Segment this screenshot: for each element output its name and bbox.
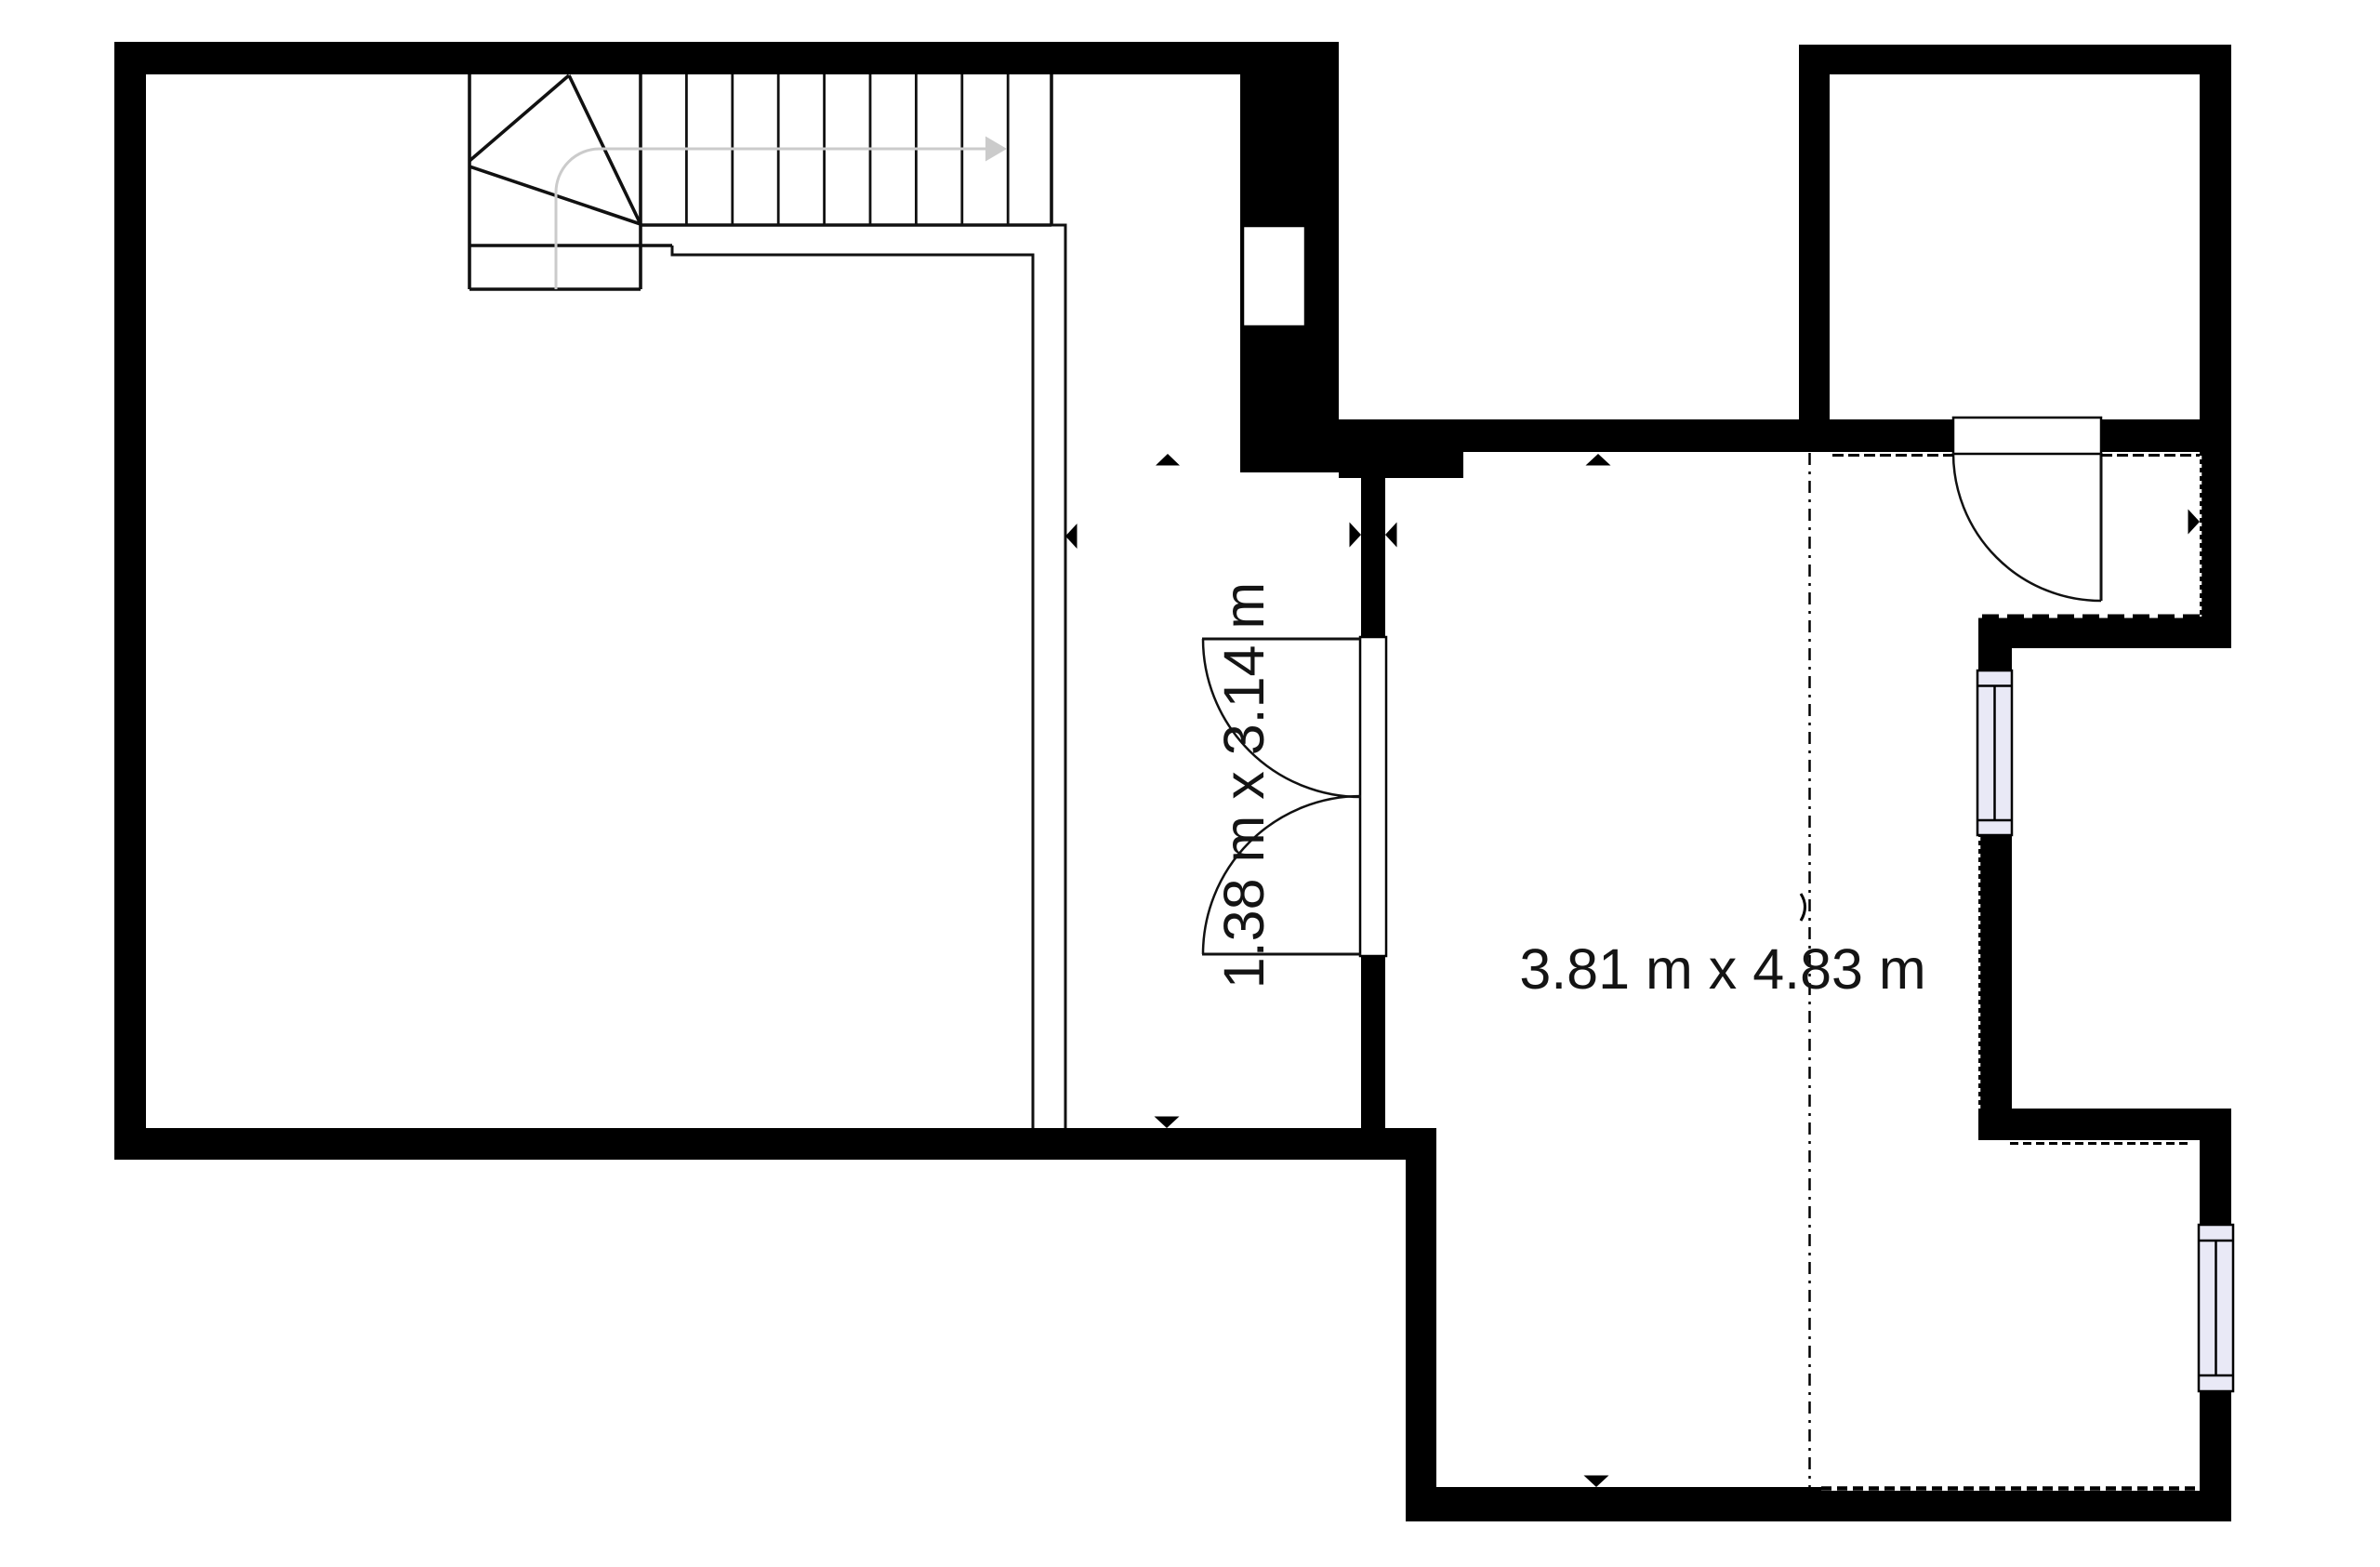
- svg-text:1.38 m x 3.14 m: 1.38 m x 3.14 m: [1212, 582, 1276, 989]
- svg-text:3.81 m x 4.83 m: 3.81 m x 4.83 m: [1519, 937, 1925, 1001]
